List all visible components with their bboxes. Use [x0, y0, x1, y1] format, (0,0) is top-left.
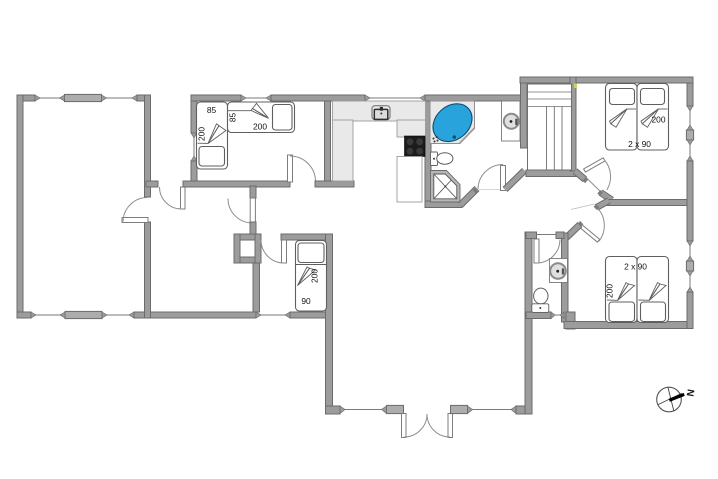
- svg-text:2 x 90: 2 x 90: [624, 262, 647, 272]
- svg-text:200: 200: [652, 115, 666, 125]
- svg-text:85: 85: [228, 113, 238, 123]
- svg-text:200: 200: [197, 127, 207, 141]
- svg-text:200: 200: [605, 284, 615, 298]
- svg-text:90: 90: [301, 296, 311, 306]
- svg-text:2 x 90: 2 x 90: [628, 139, 651, 149]
- svg-text:85: 85: [207, 105, 217, 115]
- svg-text:200: 200: [310, 269, 320, 283]
- svg-text:200: 200: [253, 122, 267, 132]
